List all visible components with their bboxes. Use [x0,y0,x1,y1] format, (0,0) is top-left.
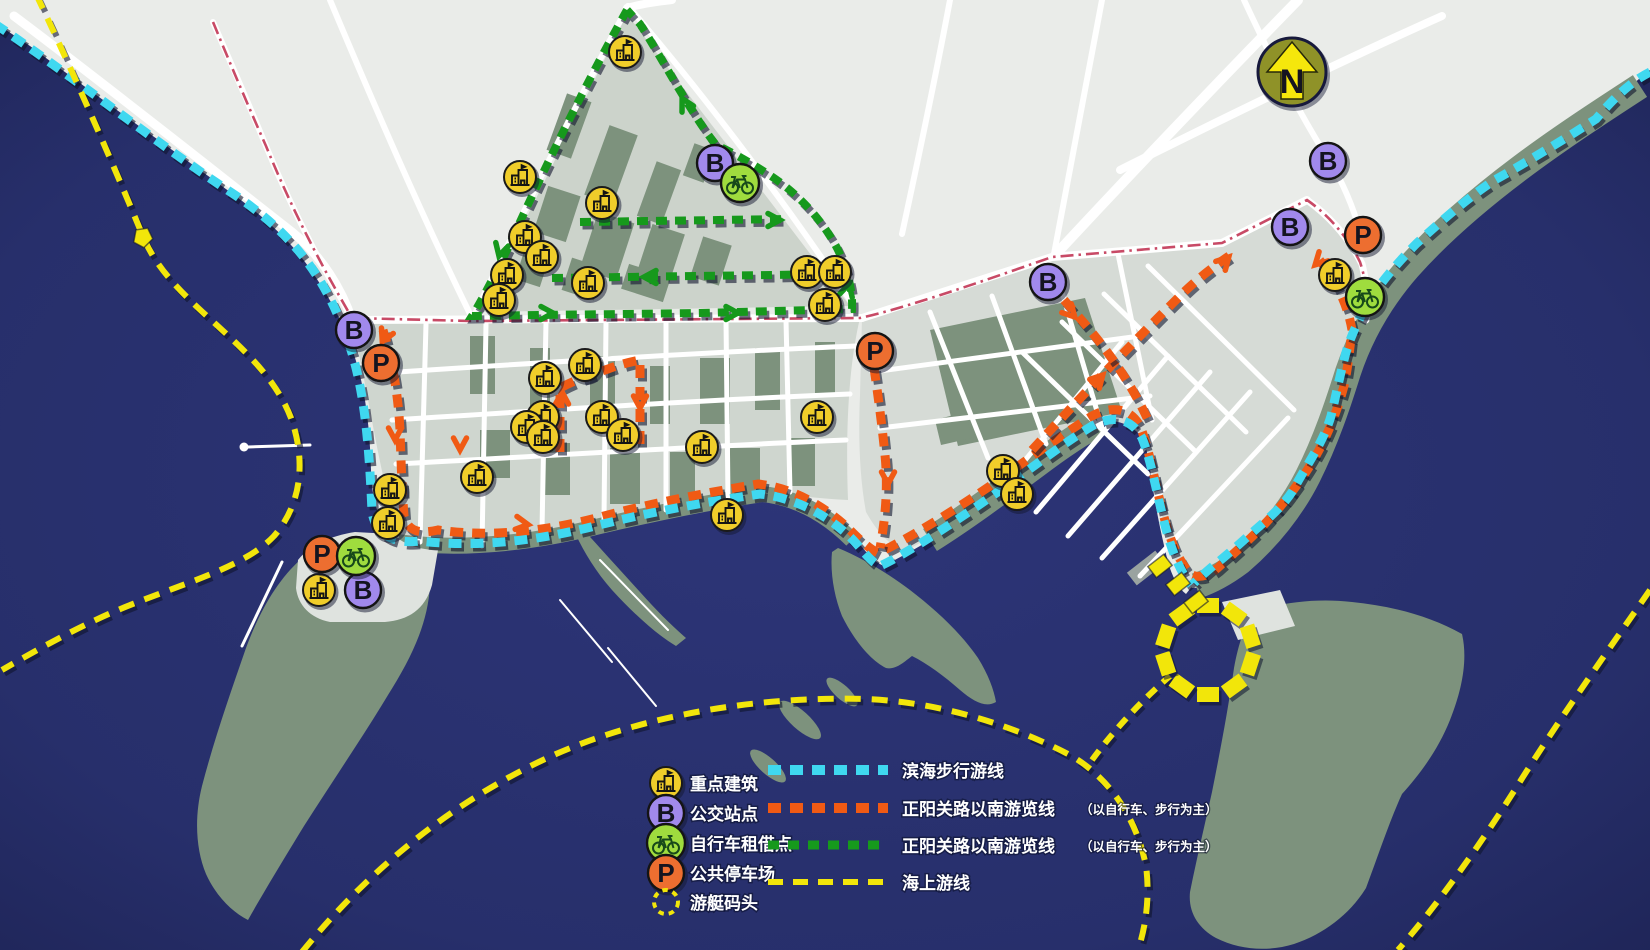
legend-note: （以自行车、步行为主） [1080,802,1218,817]
legend-label: 重点建筑 [690,774,758,794]
legend-label: 海上游线 [902,873,970,893]
yacht-dock-dash [1197,687,1219,702]
legend-label: 游艇码头 [690,893,758,913]
map-canvas: B P [0,0,1650,950]
legend-label: 滨海步行游线 [902,761,1004,781]
legend-label: 公交站点 [690,804,758,824]
legend-label: 正阳关路以南游览线 [902,799,1055,819]
tourism-planning-map: B P [0,0,1650,950]
compass-letter: N [1280,63,1305,101]
pier-end [240,443,249,452]
legend-label: 正阳关路以南游览线 [902,836,1055,856]
legend-note: （以自行车、步行为主） [1080,839,1218,854]
legend-label: 公共停车场 [690,864,775,884]
